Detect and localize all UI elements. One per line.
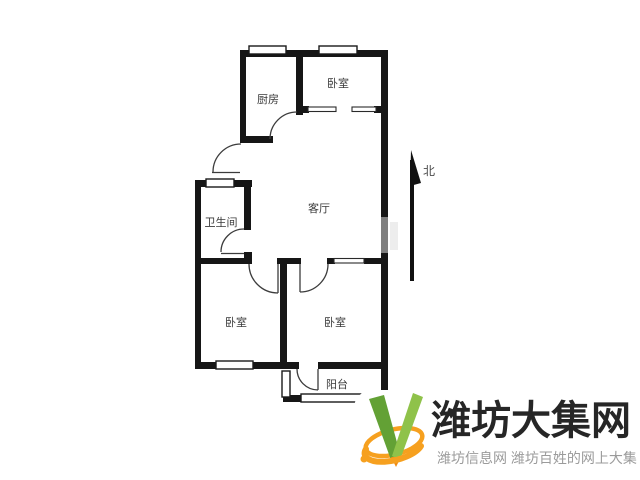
- wall-bedroomright-bottom-left: [287, 362, 299, 369]
- door-balcony-arc: [297, 369, 318, 390]
- north-arrow-head: [410, 150, 421, 186]
- window-bedroomtop-living-1: [308, 107, 336, 112]
- wall-left-kitchen: [240, 50, 246, 143]
- door-bedroomright-arc: [300, 264, 328, 292]
- doors: [212, 112, 328, 390]
- window-balcony-bottom: [301, 394, 361, 402]
- window-balcony-left: [282, 371, 290, 397]
- wall-bedroomright-bottom-right: [318, 362, 387, 369]
- site-logo: [354, 390, 436, 472]
- window-bedroomtop-top: [319, 46, 357, 54]
- north-arrow: 北: [410, 150, 435, 281]
- floorplan-screenshot: 北 厨房 卧室 客厅 卫生间 卧室 卧室 阳台 潍坊大集网 潍坊信息网 潍坊百姓…: [0, 0, 640, 480]
- room-label-bedroom-top: 卧室: [327, 76, 349, 90]
- room-label-living-room: 客厅: [308, 201, 330, 215]
- window-bedroomleft-bottom: [216, 361, 253, 369]
- window-bedroomright-living: [334, 259, 364, 264]
- site-name: 潍坊大集网: [431, 399, 640, 443]
- wall-bedroomtop-bottom-left: [296, 106, 309, 113]
- window-bathroom-top: [206, 179, 234, 187]
- room-label-bedroom-right: 卧室: [324, 315, 346, 329]
- wall-kitchen-bedroom-divider: [296, 50, 303, 115]
- wall-mid-d: [364, 258, 387, 264]
- door-entry-arc: [213, 144, 241, 172]
- door-bathroom-arc: [221, 229, 244, 252]
- door-bedroomleft-arc: [249, 264, 278, 293]
- room-label-balcony: 阳台: [326, 377, 348, 391]
- window-bedroomtop-living-2: [352, 107, 376, 112]
- window-kitchen-top: [249, 46, 286, 54]
- room-label-bedroom-left: 卧室: [225, 315, 247, 329]
- room-label-bathroom: 卫生间: [205, 215, 238, 229]
- watermark-smudge-2: [390, 222, 398, 250]
- room-label-kitchen: 厨房: [257, 93, 279, 106]
- wall-bathroom-left: [195, 180, 201, 264]
- site-tagline: 潍坊信息网 潍坊百姓的网上大集: [437, 448, 637, 468]
- north-label: 北: [423, 164, 435, 178]
- wall-bedroom-divider: [280, 258, 287, 369]
- room-labels: 厨房 卧室 客厅 卫生间 卧室 卧室 阳台: [205, 76, 350, 391]
- logo-swoosh-dot: [361, 456, 368, 463]
- door-kitchen-arc: [270, 112, 297, 139]
- wall-kitchen-bottom: [240, 136, 273, 143]
- wall-mid-a: [195, 258, 248, 264]
- wall-bathroom-right-upper: [244, 180, 251, 230]
- watermark-smudge: [378, 217, 388, 253]
- interior-windows: [308, 107, 376, 263]
- wall-left-lower: [195, 258, 201, 369]
